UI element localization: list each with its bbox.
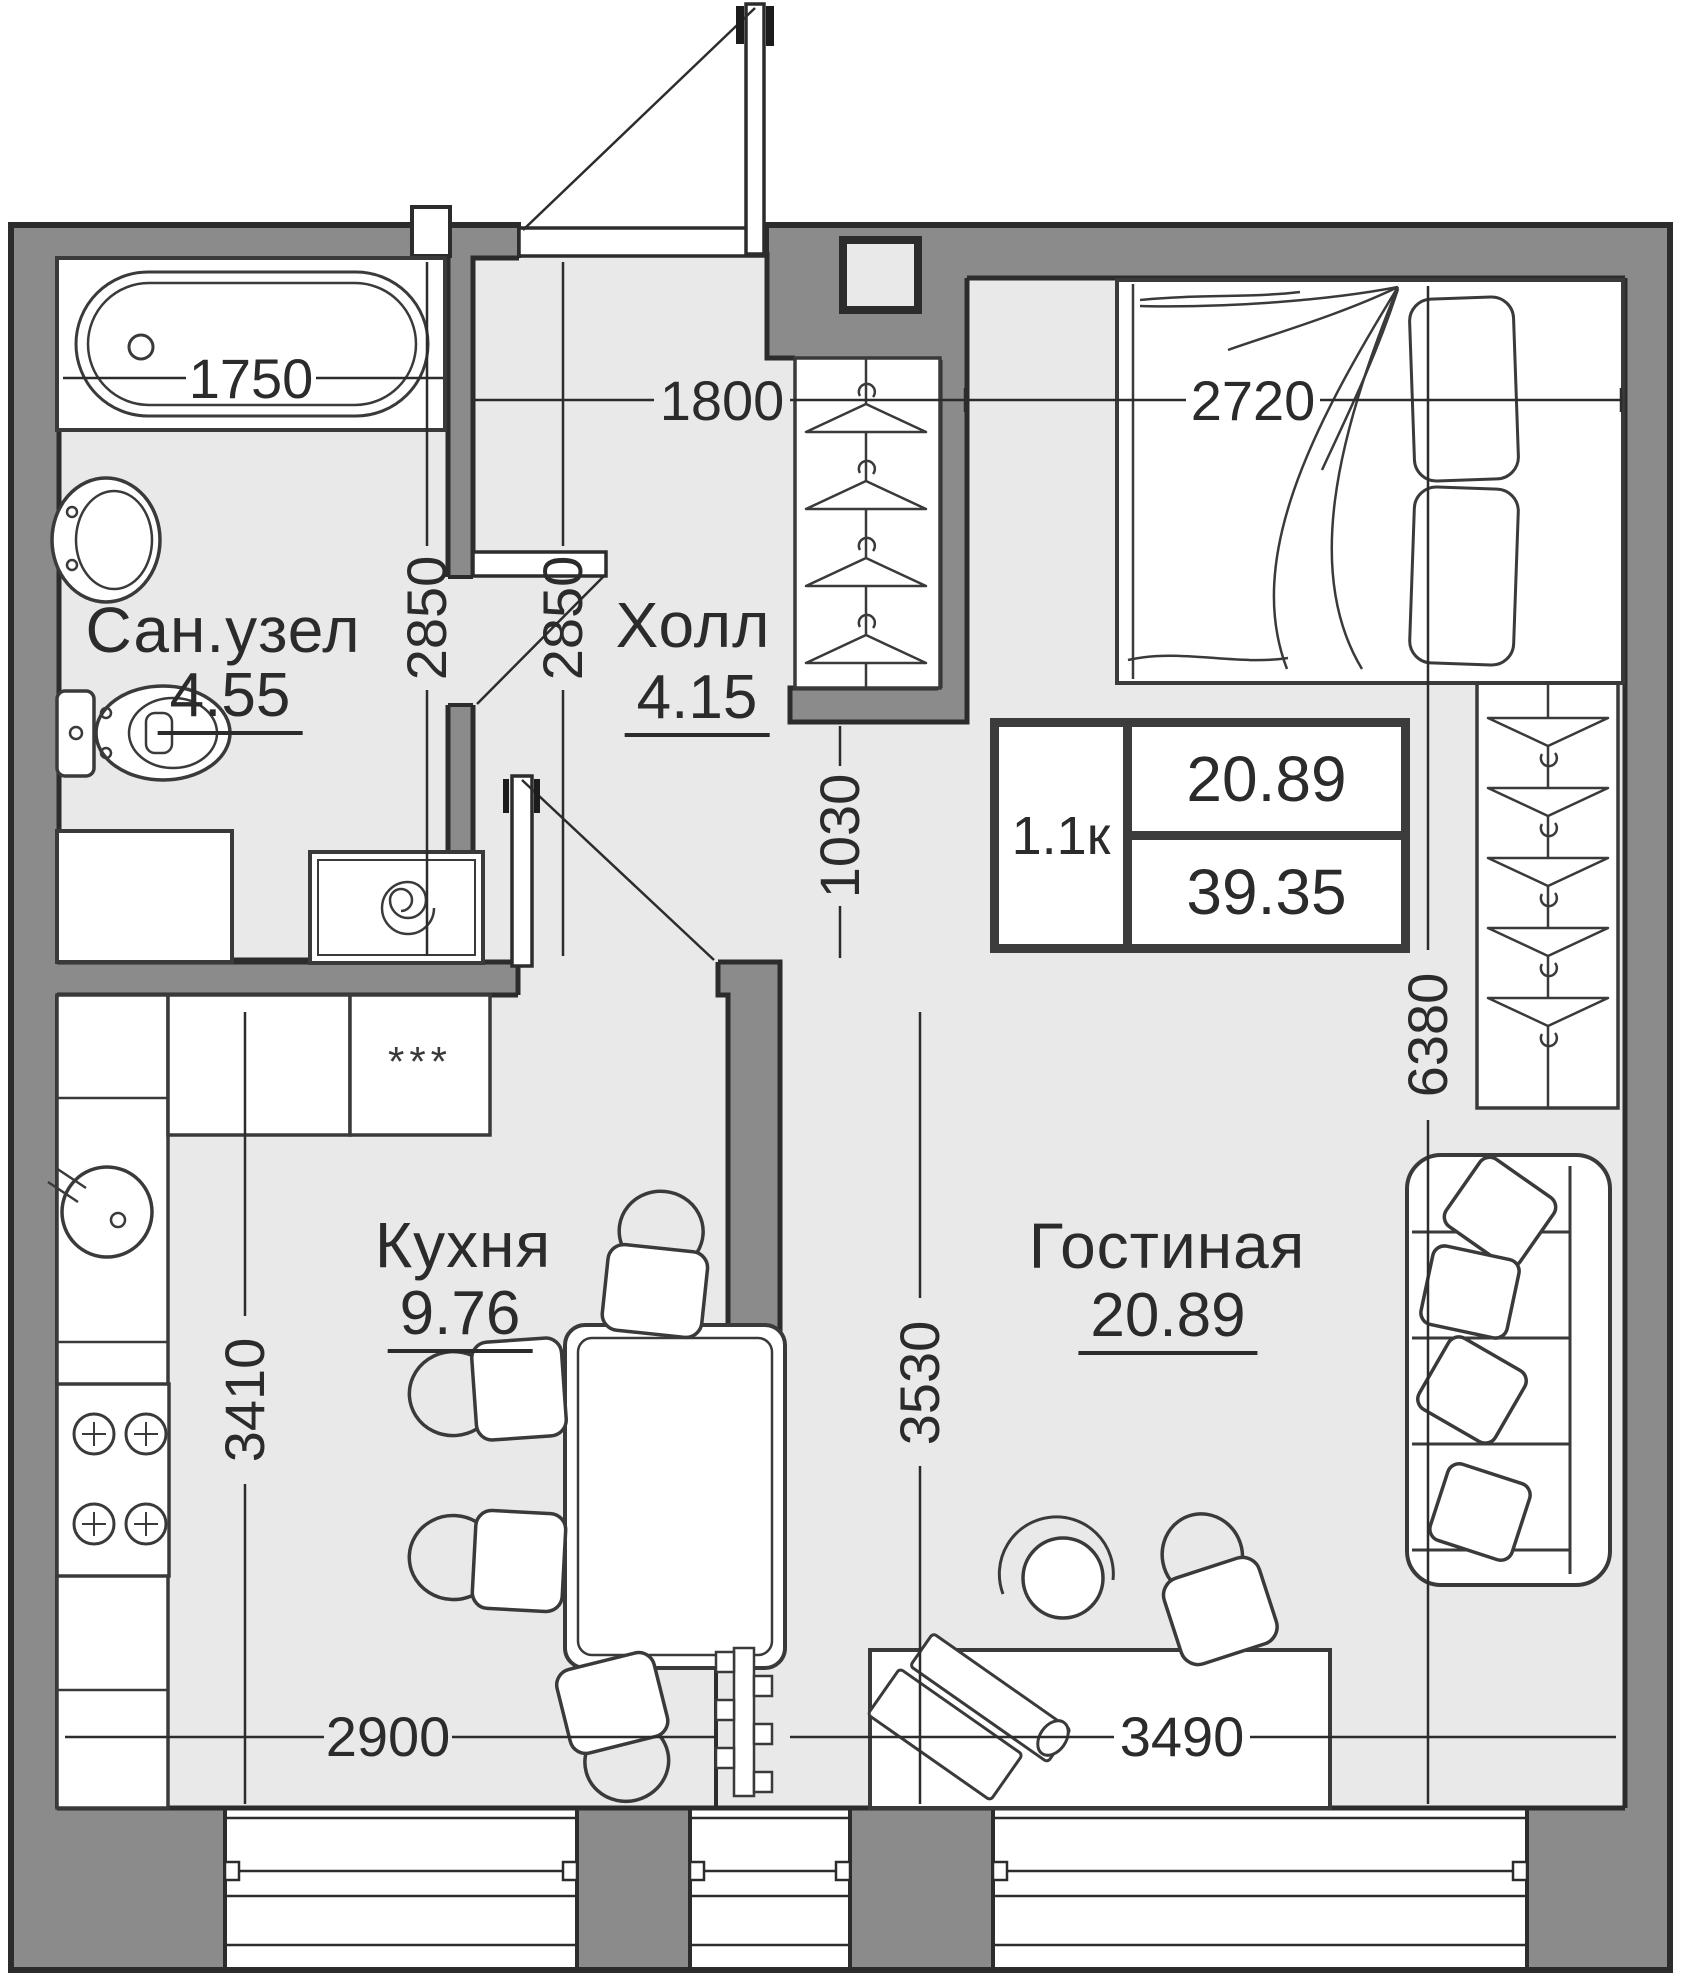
dim-bathroom-depth: 2850 [399, 556, 455, 681]
dim-living-depth: 3530 [892, 1321, 948, 1446]
room-label-bathroom: Сан.узел [85, 598, 360, 662]
bed [1117, 280, 1623, 683]
room-area-kitchen: 9.76 [388, 1283, 533, 1353]
wardrobe-living [1477, 680, 1618, 1108]
wardrobe-hall [795, 358, 940, 688]
floor-plan: Сан.узел 4.55 Холл 4.15 Кухня 9.76 Гости… [0, 0, 1681, 1980]
dim-living-width: 3490 [1120, 1709, 1245, 1765]
dim-hall-depth: 2850 [535, 556, 591, 681]
entry-door [519, 4, 774, 256]
bathroom-cabinet [57, 831, 232, 962]
living-area-value: 20.89 [1132, 727, 1401, 840]
plan-type-label: 1.1к [999, 727, 1132, 944]
room-label-hall: Холл [616, 593, 771, 657]
sofa [1407, 1153, 1610, 1585]
vent-shaft [843, 240, 918, 310]
dim-hall-width: 1800 [660, 373, 785, 429]
appliance-marker: *** [388, 1041, 452, 1083]
dim-living-length: 6380 [1400, 973, 1456, 1098]
duct-box [412, 207, 450, 256]
dim-bathtub: 1750 [189, 351, 314, 407]
washing-machine [310, 852, 483, 963]
room-label-kitchen: Кухня [375, 1213, 551, 1277]
dim-bed-zone-width: 2720 [1191, 373, 1316, 429]
dim-kitchen-width: 2900 [326, 1709, 451, 1765]
stove [57, 1384, 169, 1576]
room-label-living: Гостиная [1029, 1214, 1306, 1278]
dim-kitchen-depth: 3410 [217, 1338, 273, 1463]
dim-wardrobe-passage: 1030 [812, 774, 868, 899]
room-area-living: 20.89 [1078, 1285, 1257, 1355]
room-area-bathroom: 4.55 [158, 665, 303, 735]
room-area-hall: 4.15 [625, 667, 770, 737]
total-area-value: 39.35 [1132, 840, 1401, 944]
dining-table [565, 1325, 785, 1668]
info-box: 1.1к 20.89 39.35 [990, 718, 1410, 953]
desk [868, 1629, 1330, 1815]
washbasin [52, 478, 160, 602]
